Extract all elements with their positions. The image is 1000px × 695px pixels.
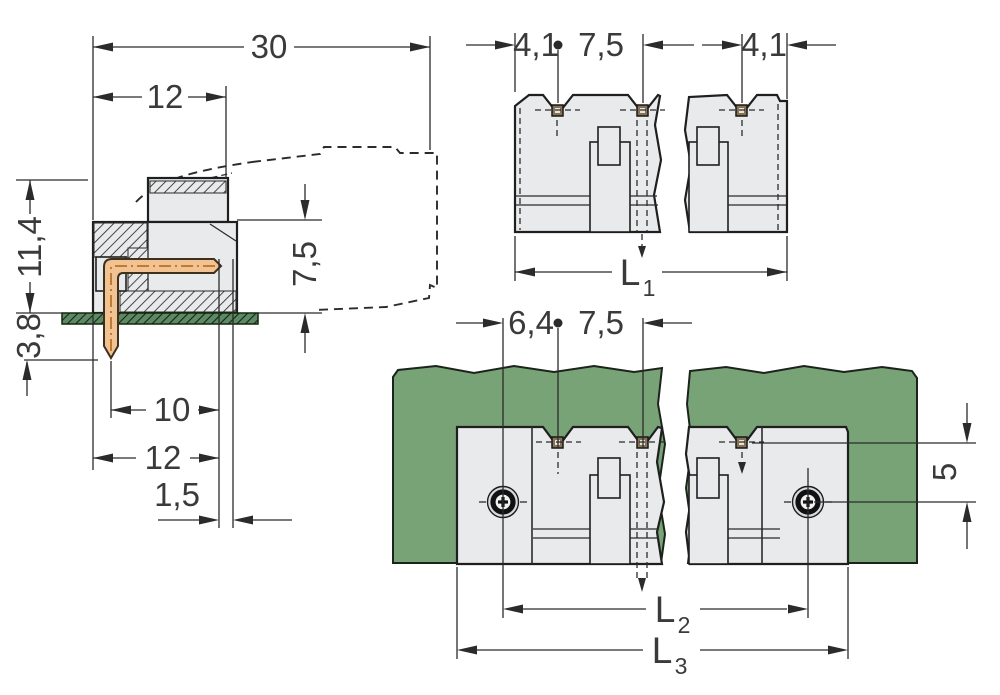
dim-l2-label: L: [655, 589, 676, 630]
drawing-canvas: 30 12 11,4 3,8: [0, 0, 1000, 695]
dim-pin-row-offset: 1,5: [154, 476, 292, 525]
dim-pin-row-to-screw-row-label: 5: [926, 463, 963, 481]
board-view: 6,4 7,5 5 L 2 L: [393, 304, 976, 679]
dim-pin-pitch-board: 7,5: [578, 304, 692, 341]
dim-housing-depth: 12: [93, 78, 226, 115]
dim-pin-inset: 10: [111, 391, 219, 428]
dim-housing-depth-lower: 12: [93, 439, 219, 476]
dim-pin-length-below-board: 3,8: [10, 313, 47, 396]
dim-pin-pitch-board-label: 7,5: [578, 304, 624, 341]
dim-overall-length-l1: L 1: [515, 252, 787, 301]
dim-dot-terminator: [554, 41, 563, 50]
dim-l3-subscript: 3: [675, 653, 688, 679]
dim-pin-row-to-screw-row: 5: [926, 403, 972, 549]
dim-l2-subscript: 2: [678, 612, 691, 638]
board-left-segment: [457, 427, 664, 592]
pcb-section-strip: [62, 313, 258, 324]
front-left-segment: [515, 95, 665, 258]
dim-screw-to-first-pin: 6,4: [456, 304, 563, 341]
dim-last-pin-to-edge: 4,1: [702, 26, 836, 63]
dim-overall-depth: 30: [93, 28, 430, 65]
front-right-segment: [685, 95, 787, 232]
center-axis-arrow: [638, 578, 646, 592]
dim-height-above-board-label: 11,4: [11, 216, 48, 278]
dim-edge-to-first-pin-label: 4,1: [513, 26, 559, 63]
dim-housing-depth-lower-label: 12: [145, 439, 182, 476]
dim-pin-pitch-front-label: 7,5: [578, 26, 624, 63]
dim-l1-subscript: 1: [643, 275, 656, 301]
dim-pin-length-below-board-label: 3,8: [10, 313, 47, 359]
dim-height-above-board: 11,4: [11, 180, 48, 313]
side-view: 30 12 11,4 3,8: [10, 28, 437, 528]
dim-overall-depth-label: 30: [251, 28, 288, 65]
dim-l3-label: L: [652, 630, 673, 671]
technical-drawing: 30 12 11,4 3,8: [0, 0, 1000, 695]
section-hatch: [150, 181, 226, 193]
dim-dot-terminator: [554, 319, 563, 328]
dim-screw-to-first-pin-label: 6,4: [508, 304, 554, 341]
dim-mating-depth-label: 7,5: [286, 241, 323, 287]
dim-pin-inset-label: 10: [154, 391, 191, 428]
dim-overall-length-l3: L 3: [457, 630, 848, 679]
dim-pin-pitch-front: 7,5: [578, 26, 694, 63]
dim-edge-to-first-pin: 4,1: [466, 26, 563, 63]
dim-mating-depth: 7,5: [286, 184, 323, 353]
dim-l1-label: L: [620, 252, 641, 293]
dim-housing-depth-label: 12: [147, 78, 184, 115]
dim-pin-row-offset-label: 1,5: [154, 476, 200, 513]
board-right-segment: [686, 427, 848, 564]
front-view: 4,1 7,5 4,1 L 1: [466, 26, 836, 301]
dim-last-pin-to-edge-label: 4,1: [741, 26, 787, 63]
